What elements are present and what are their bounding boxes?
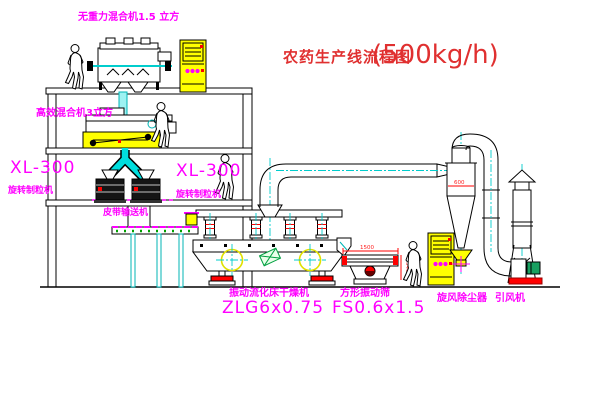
vibrating-screen-machine: 1500 540 [337, 238, 410, 284]
screen-length-dimension: 1500 [360, 245, 374, 251]
rotary-granulator-left [94, 170, 126, 203]
label-fan: 引风机 [495, 294, 525, 304]
label-cyclone: 旋风除尘器 [437, 294, 487, 304]
control-cabinet-1 [180, 40, 206, 92]
cyclone-machine: 600 [445, 132, 500, 274]
label-dryer-model: ZLG6x0.75 [222, 300, 324, 317]
label-granulator-left-name: 旋转制粒机 [8, 187, 53, 196]
label-granulator-right-name: 旋转制粒机 [176, 191, 221, 200]
exhaust-duct [260, 164, 450, 207]
label-granulator-right-model: XL-300 [176, 163, 241, 180]
belt-conveyor-machine [112, 227, 198, 287]
diagram-title-capacity: (500kg/h) [372, 42, 499, 68]
label-granulator-left-model: XL-300 [10, 160, 75, 177]
induced-draft-fan-machine [509, 259, 542, 284]
worker-figure-1 [66, 45, 84, 90]
process-flow-diagram: 600 1500 [0, 0, 600, 403]
label-screen-model: FS0.6x1.5 [332, 300, 425, 317]
label-gravity-free-mixer: 无重力混合机1.5 立方 [78, 13, 179, 23]
cyclone-dimension-text: 600 [454, 180, 465, 186]
label-high-efficiency-mixer: 高效混合机3立方 [36, 109, 113, 119]
fan-inlet-pipe [484, 248, 512, 276]
control-cabinet-2 [428, 233, 454, 285]
label-belt-conveyor: 皮带输送机 [103, 209, 148, 218]
